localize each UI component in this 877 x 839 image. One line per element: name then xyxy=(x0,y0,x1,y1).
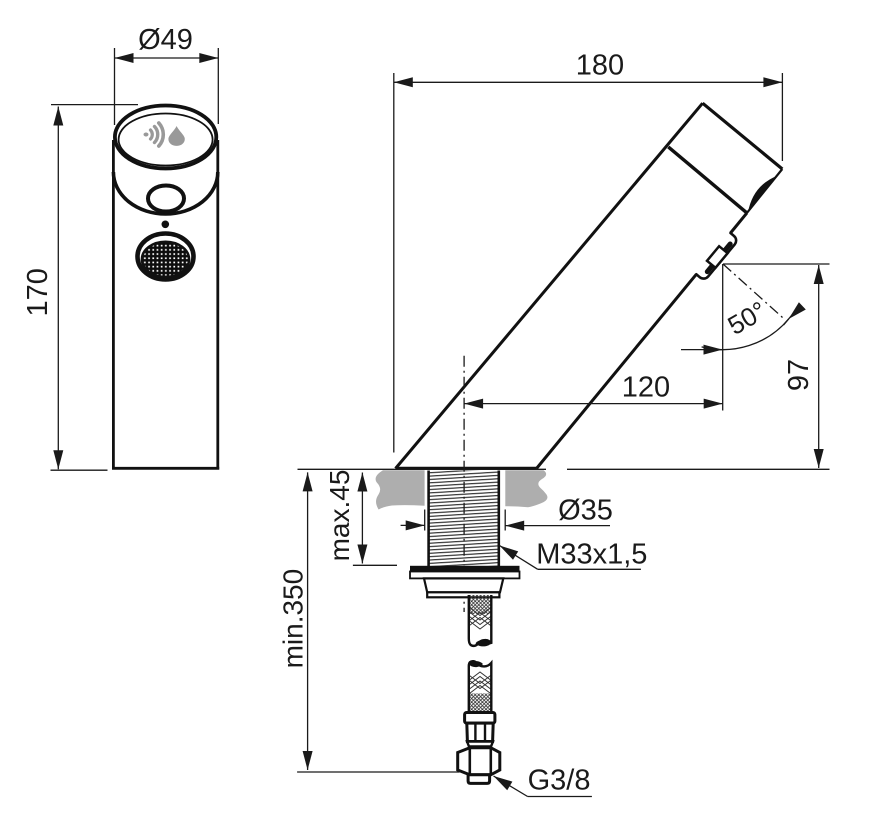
svg-text:max.45: max.45 xyxy=(324,470,355,562)
svg-text:min.350: min.350 xyxy=(278,569,309,669)
svg-text:97: 97 xyxy=(783,359,815,391)
svg-text:G3/8: G3/8 xyxy=(528,765,591,797)
svg-text:120: 120 xyxy=(622,372,670,404)
svg-text:M33x1,5: M33x1,5 xyxy=(536,539,647,571)
svg-text:180: 180 xyxy=(576,50,624,82)
svg-text:Ø35: Ø35 xyxy=(558,495,613,527)
svg-text:Ø49: Ø49 xyxy=(138,24,193,56)
svg-text:170: 170 xyxy=(22,268,54,316)
